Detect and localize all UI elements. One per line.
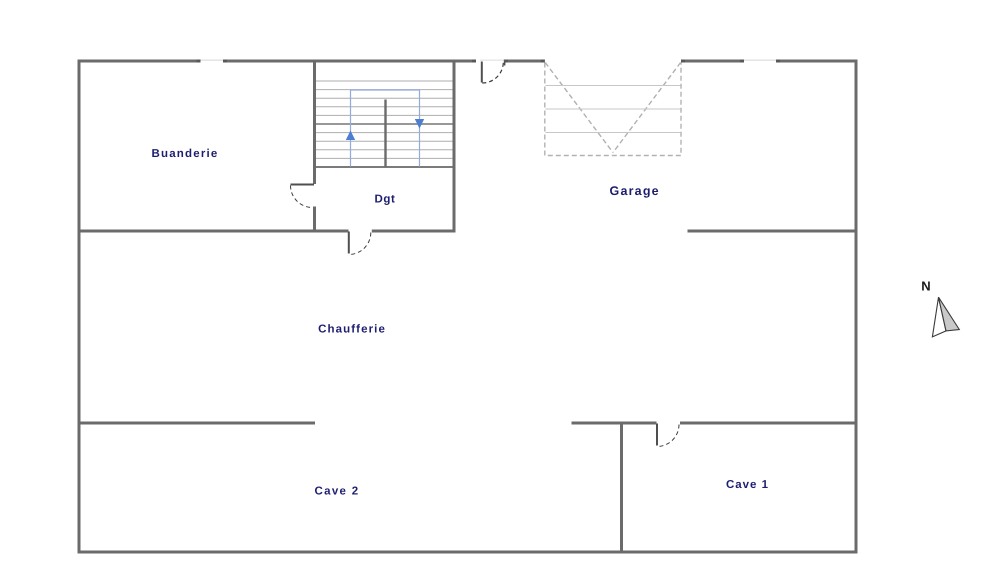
svg-text:Cave 2: Cave 2 [315, 486, 360, 498]
svg-text:Garage: Garage [610, 184, 660, 198]
svg-text:Chaufferie: Chaufferie [318, 324, 386, 336]
svg-text:N: N [921, 279, 930, 294]
svg-text:Dgt: Dgt [375, 194, 396, 206]
svg-text:Cave 1: Cave 1 [726, 479, 769, 491]
svg-text:Buanderie: Buanderie [151, 148, 218, 160]
